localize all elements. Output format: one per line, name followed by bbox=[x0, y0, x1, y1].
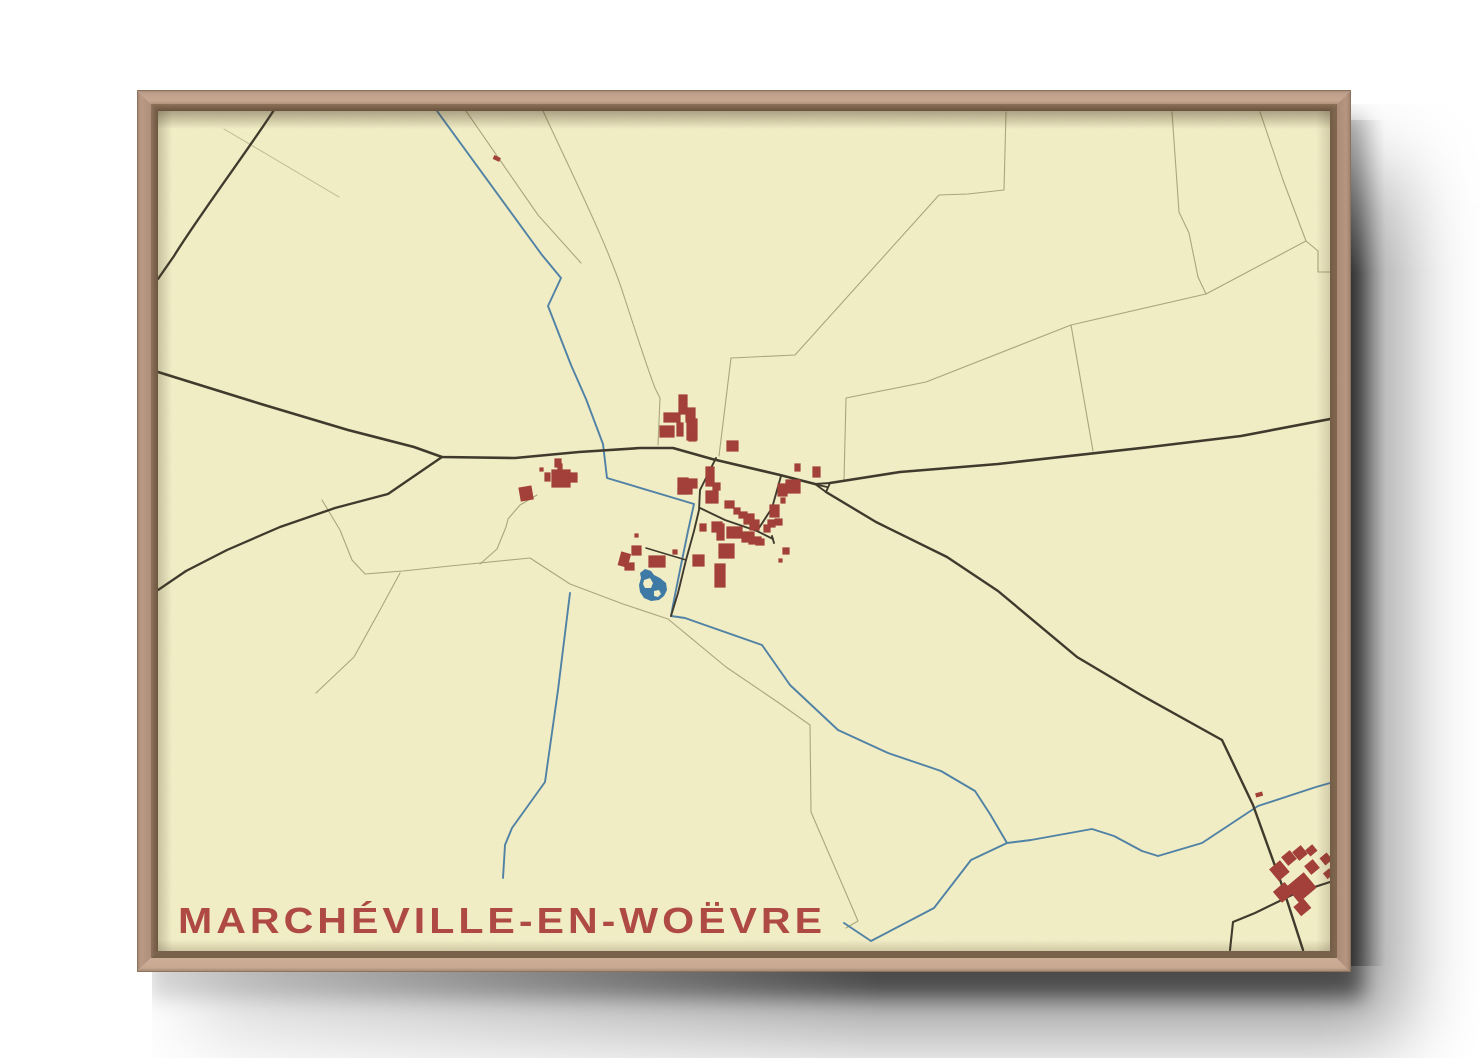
svg-text:MARCHÉVILLE-EN-WOËVRE: MARCHÉVILLE-EN-WOËVRE bbox=[178, 900, 826, 941]
